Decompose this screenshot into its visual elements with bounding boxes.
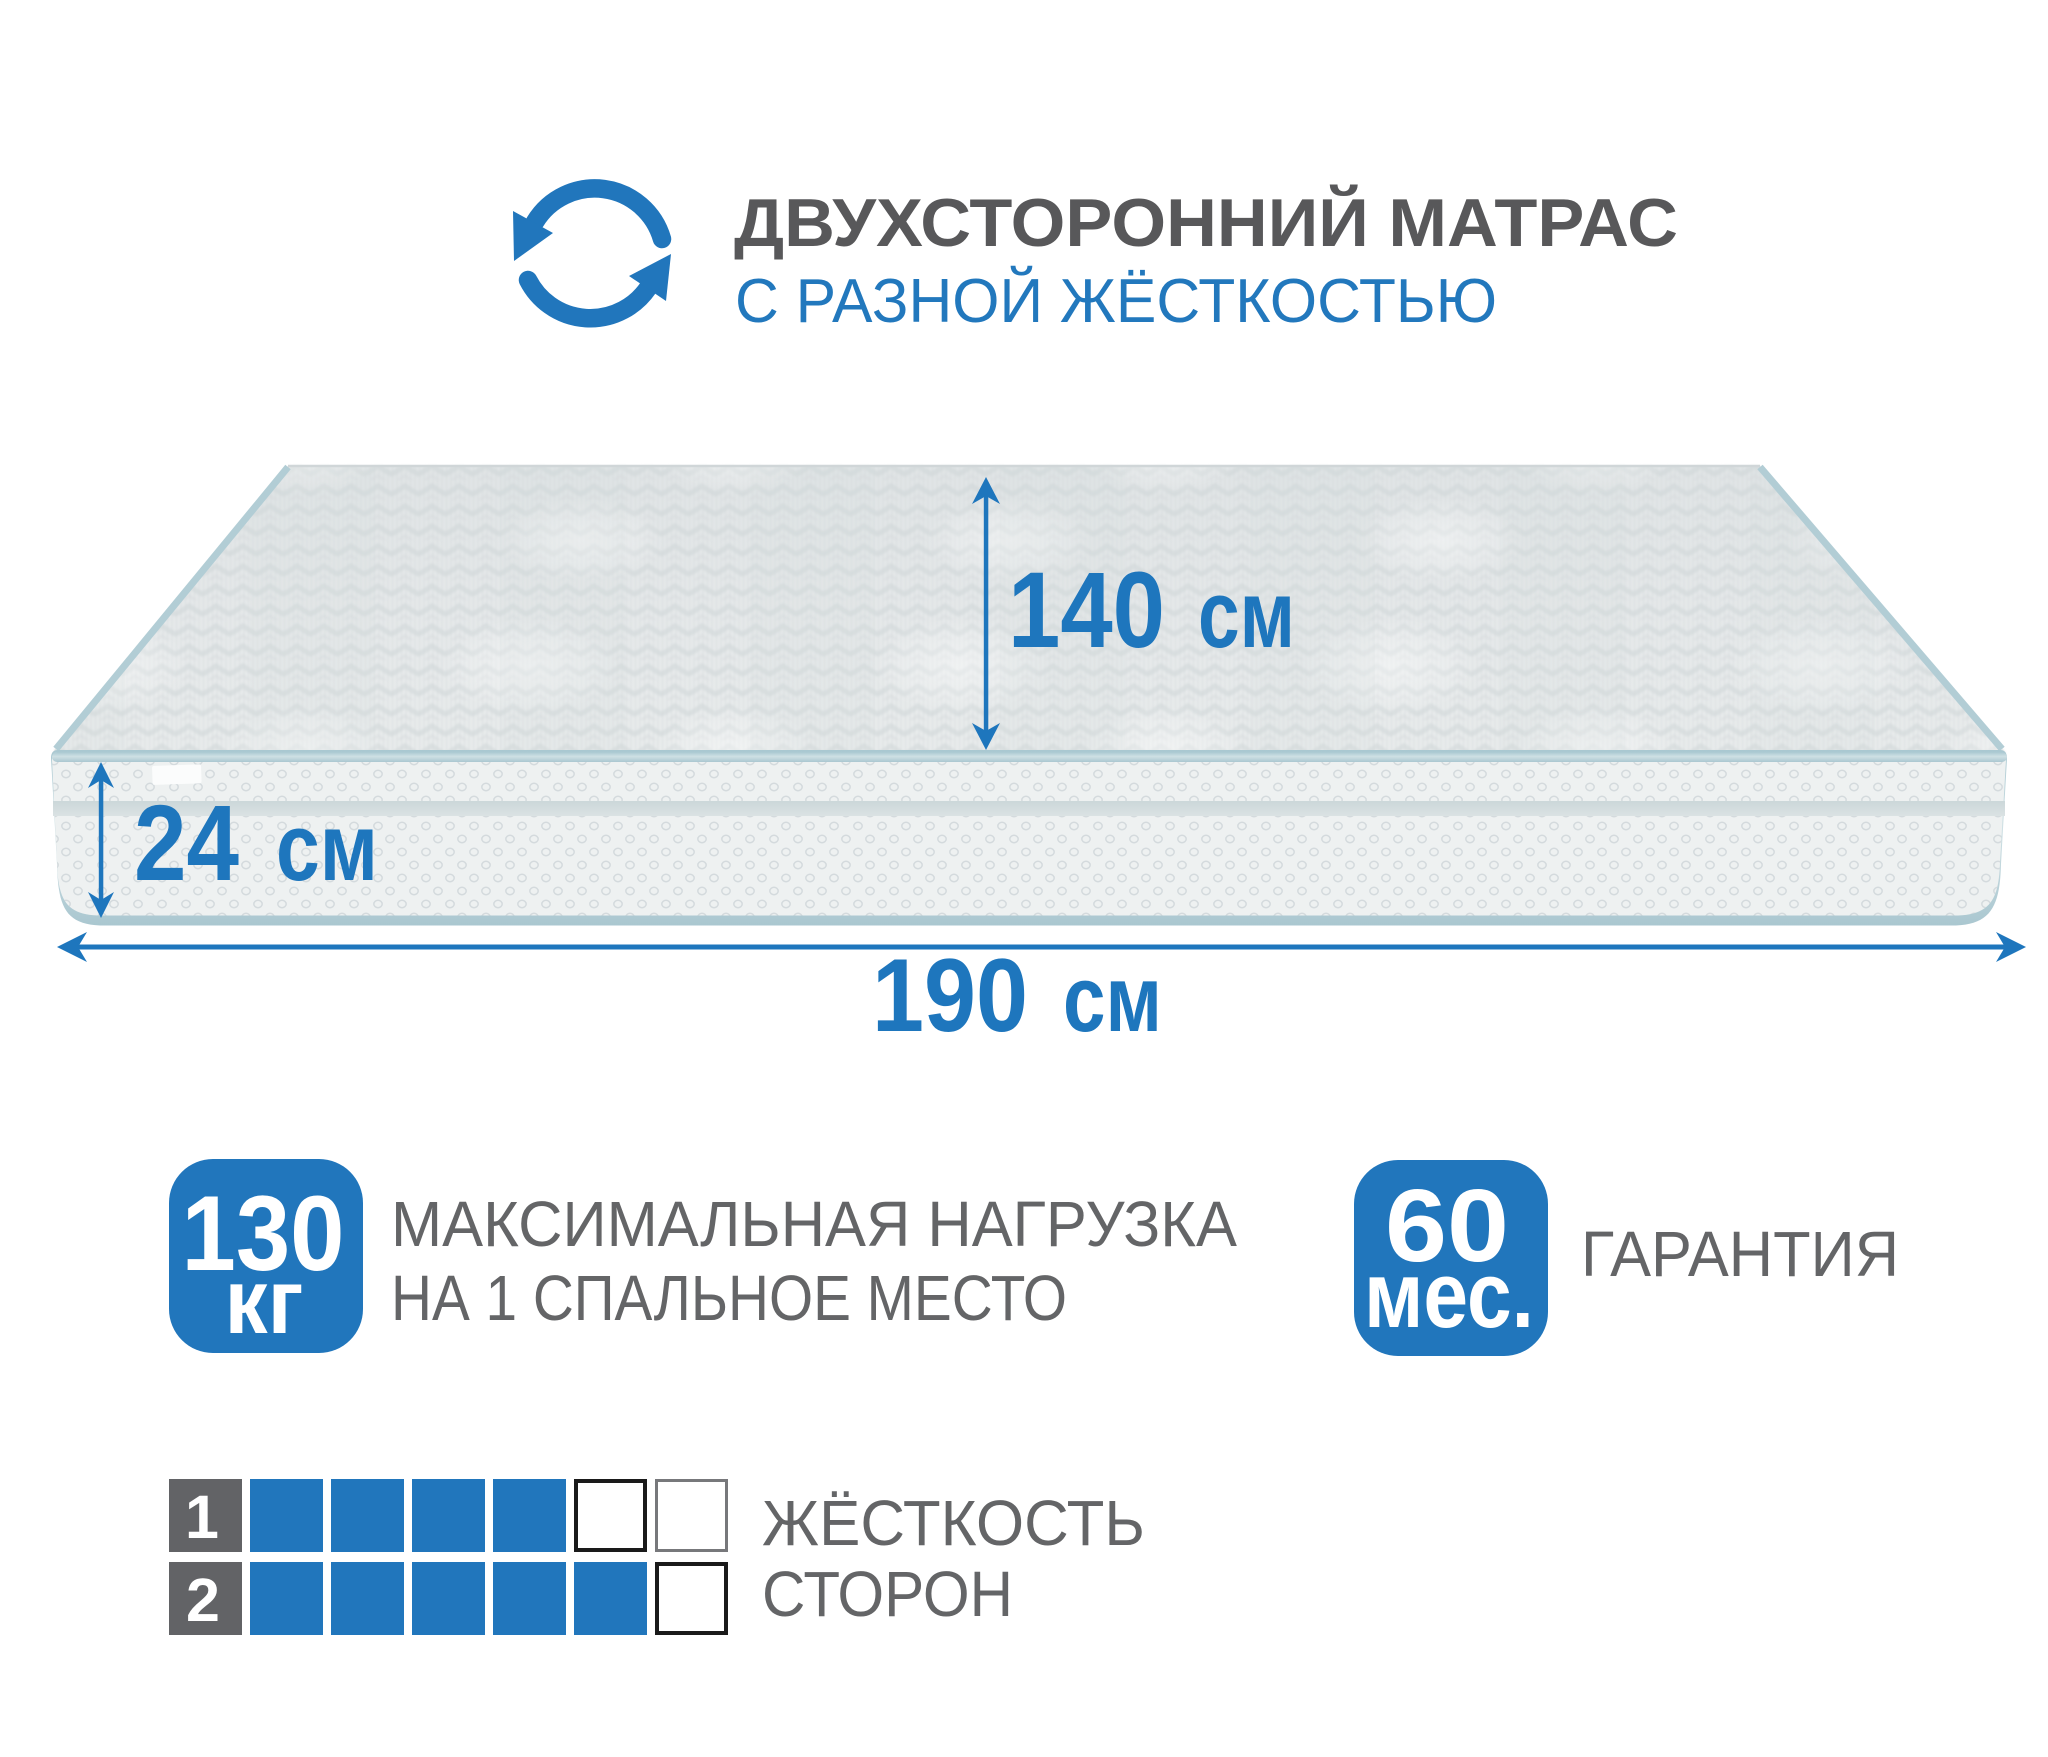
svg-text:см: см: [1063, 946, 1162, 1051]
svg-text:190: 190: [872, 938, 1028, 1054]
svg-text:24: 24: [134, 782, 239, 903]
svg-text:кг: кг: [225, 1251, 304, 1353]
svg-text:МАКСИМАЛЬНАЯ НАГРУЗКА: МАКСИМАЛЬНАЯ НАГРУЗКА: [391, 1188, 1237, 1260]
svg-text:СТОРОН: СТОРОН: [762, 1558, 1013, 1630]
svg-text:НА 1 СПАЛЬНОЕ МЕСТО: НА 1 СПАЛЬНОЕ МЕСТО: [391, 1262, 1067, 1334]
svg-text:2: 2: [186, 1566, 220, 1634]
svg-text:ДВУХСТОРОННИЙ МАТРАС: ДВУХСТОРОННИЙ МАТРАС: [734, 184, 1678, 261]
svg-text:см: см: [276, 794, 378, 901]
svg-text:С РАЗНОЙ ЖЁСТКОСТЬЮ: С РАЗНОЙ ЖЁСТКОСТЬЮ: [735, 266, 1497, 336]
svg-text:ЖЁСТКОСТЬ: ЖЁСТКОСТЬ: [762, 1487, 1145, 1559]
svg-text:1: 1: [185, 1483, 219, 1551]
svg-text:см: см: [1198, 561, 1295, 668]
svg-text:140: 140: [1008, 549, 1165, 670]
svg-text:мес.: мес.: [1364, 1242, 1534, 1347]
svg-text:ГАРАНТИЯ: ГАРАНТИЯ: [1581, 1218, 1899, 1290]
